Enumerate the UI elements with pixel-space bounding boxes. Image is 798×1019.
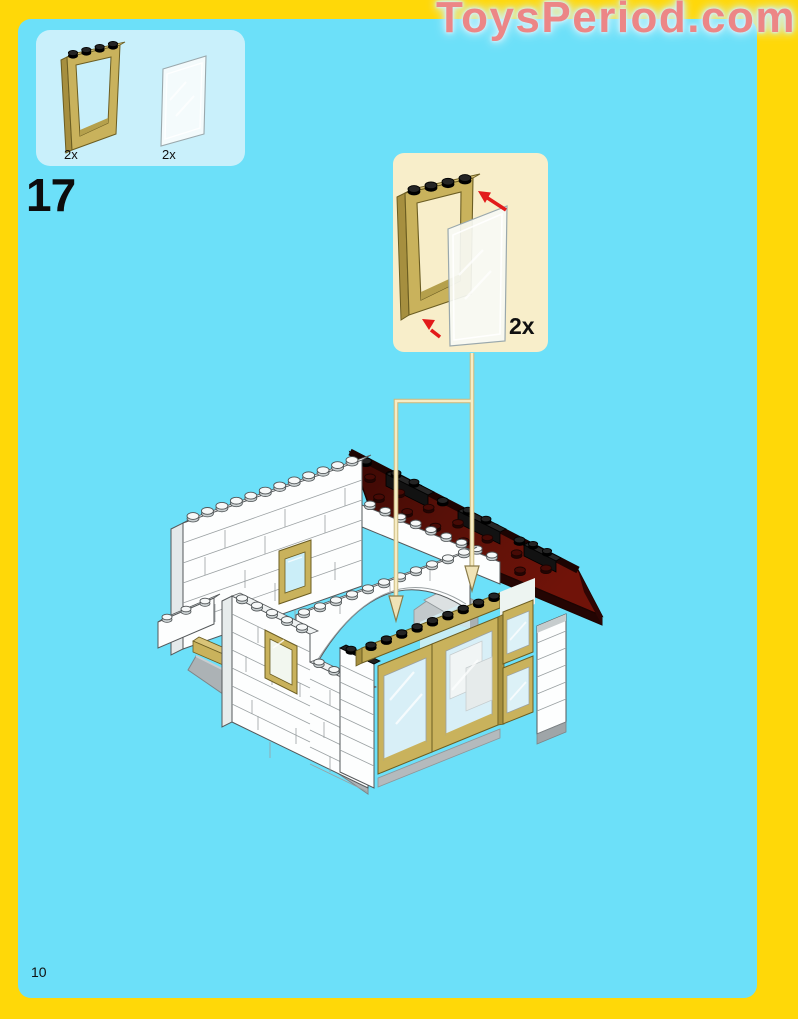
part-glass-panel-icon bbox=[161, 56, 206, 146]
parts-illustration bbox=[36, 30, 245, 166]
assembly-quantity-label: 2x bbox=[509, 313, 535, 340]
step-number: 17 bbox=[26, 168, 75, 222]
instruction-page: ToysPeriod.com 2x 2x 17 bbox=[0, 0, 798, 1019]
part-quantity-label: 2x bbox=[162, 147, 176, 162]
part-window-frame-icon bbox=[61, 41, 125, 153]
watermark-text: ToysPeriod.com bbox=[436, 0, 796, 43]
page-number: 10 bbox=[31, 964, 47, 980]
part-quantity-label: 2x bbox=[64, 147, 78, 162]
assembly-callout-box: 2x bbox=[393, 153, 548, 352]
parts-callout-box: 2x 2x bbox=[36, 30, 245, 166]
callout-glass-panel-icon bbox=[448, 206, 507, 346]
